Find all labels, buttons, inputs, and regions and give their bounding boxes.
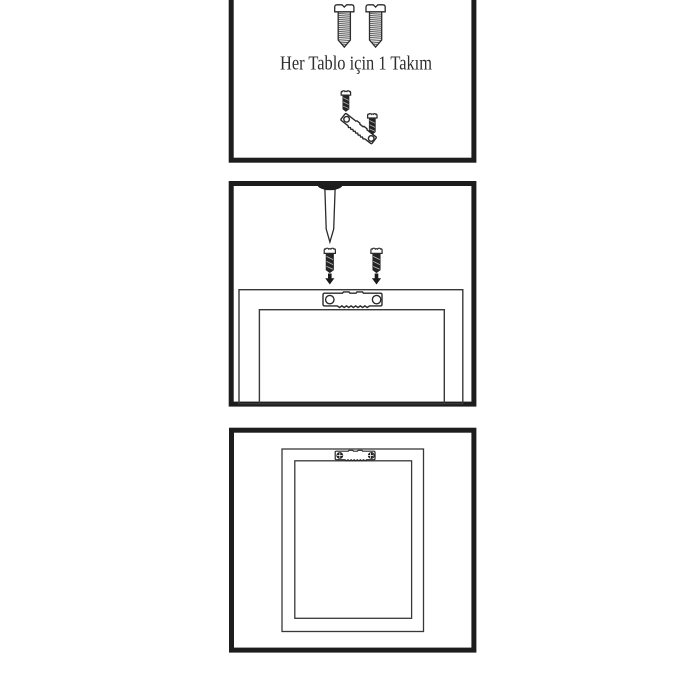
svg-text:Her Tablo için 1 Takım: Her Tablo için 1 Takım [280, 53, 432, 75]
